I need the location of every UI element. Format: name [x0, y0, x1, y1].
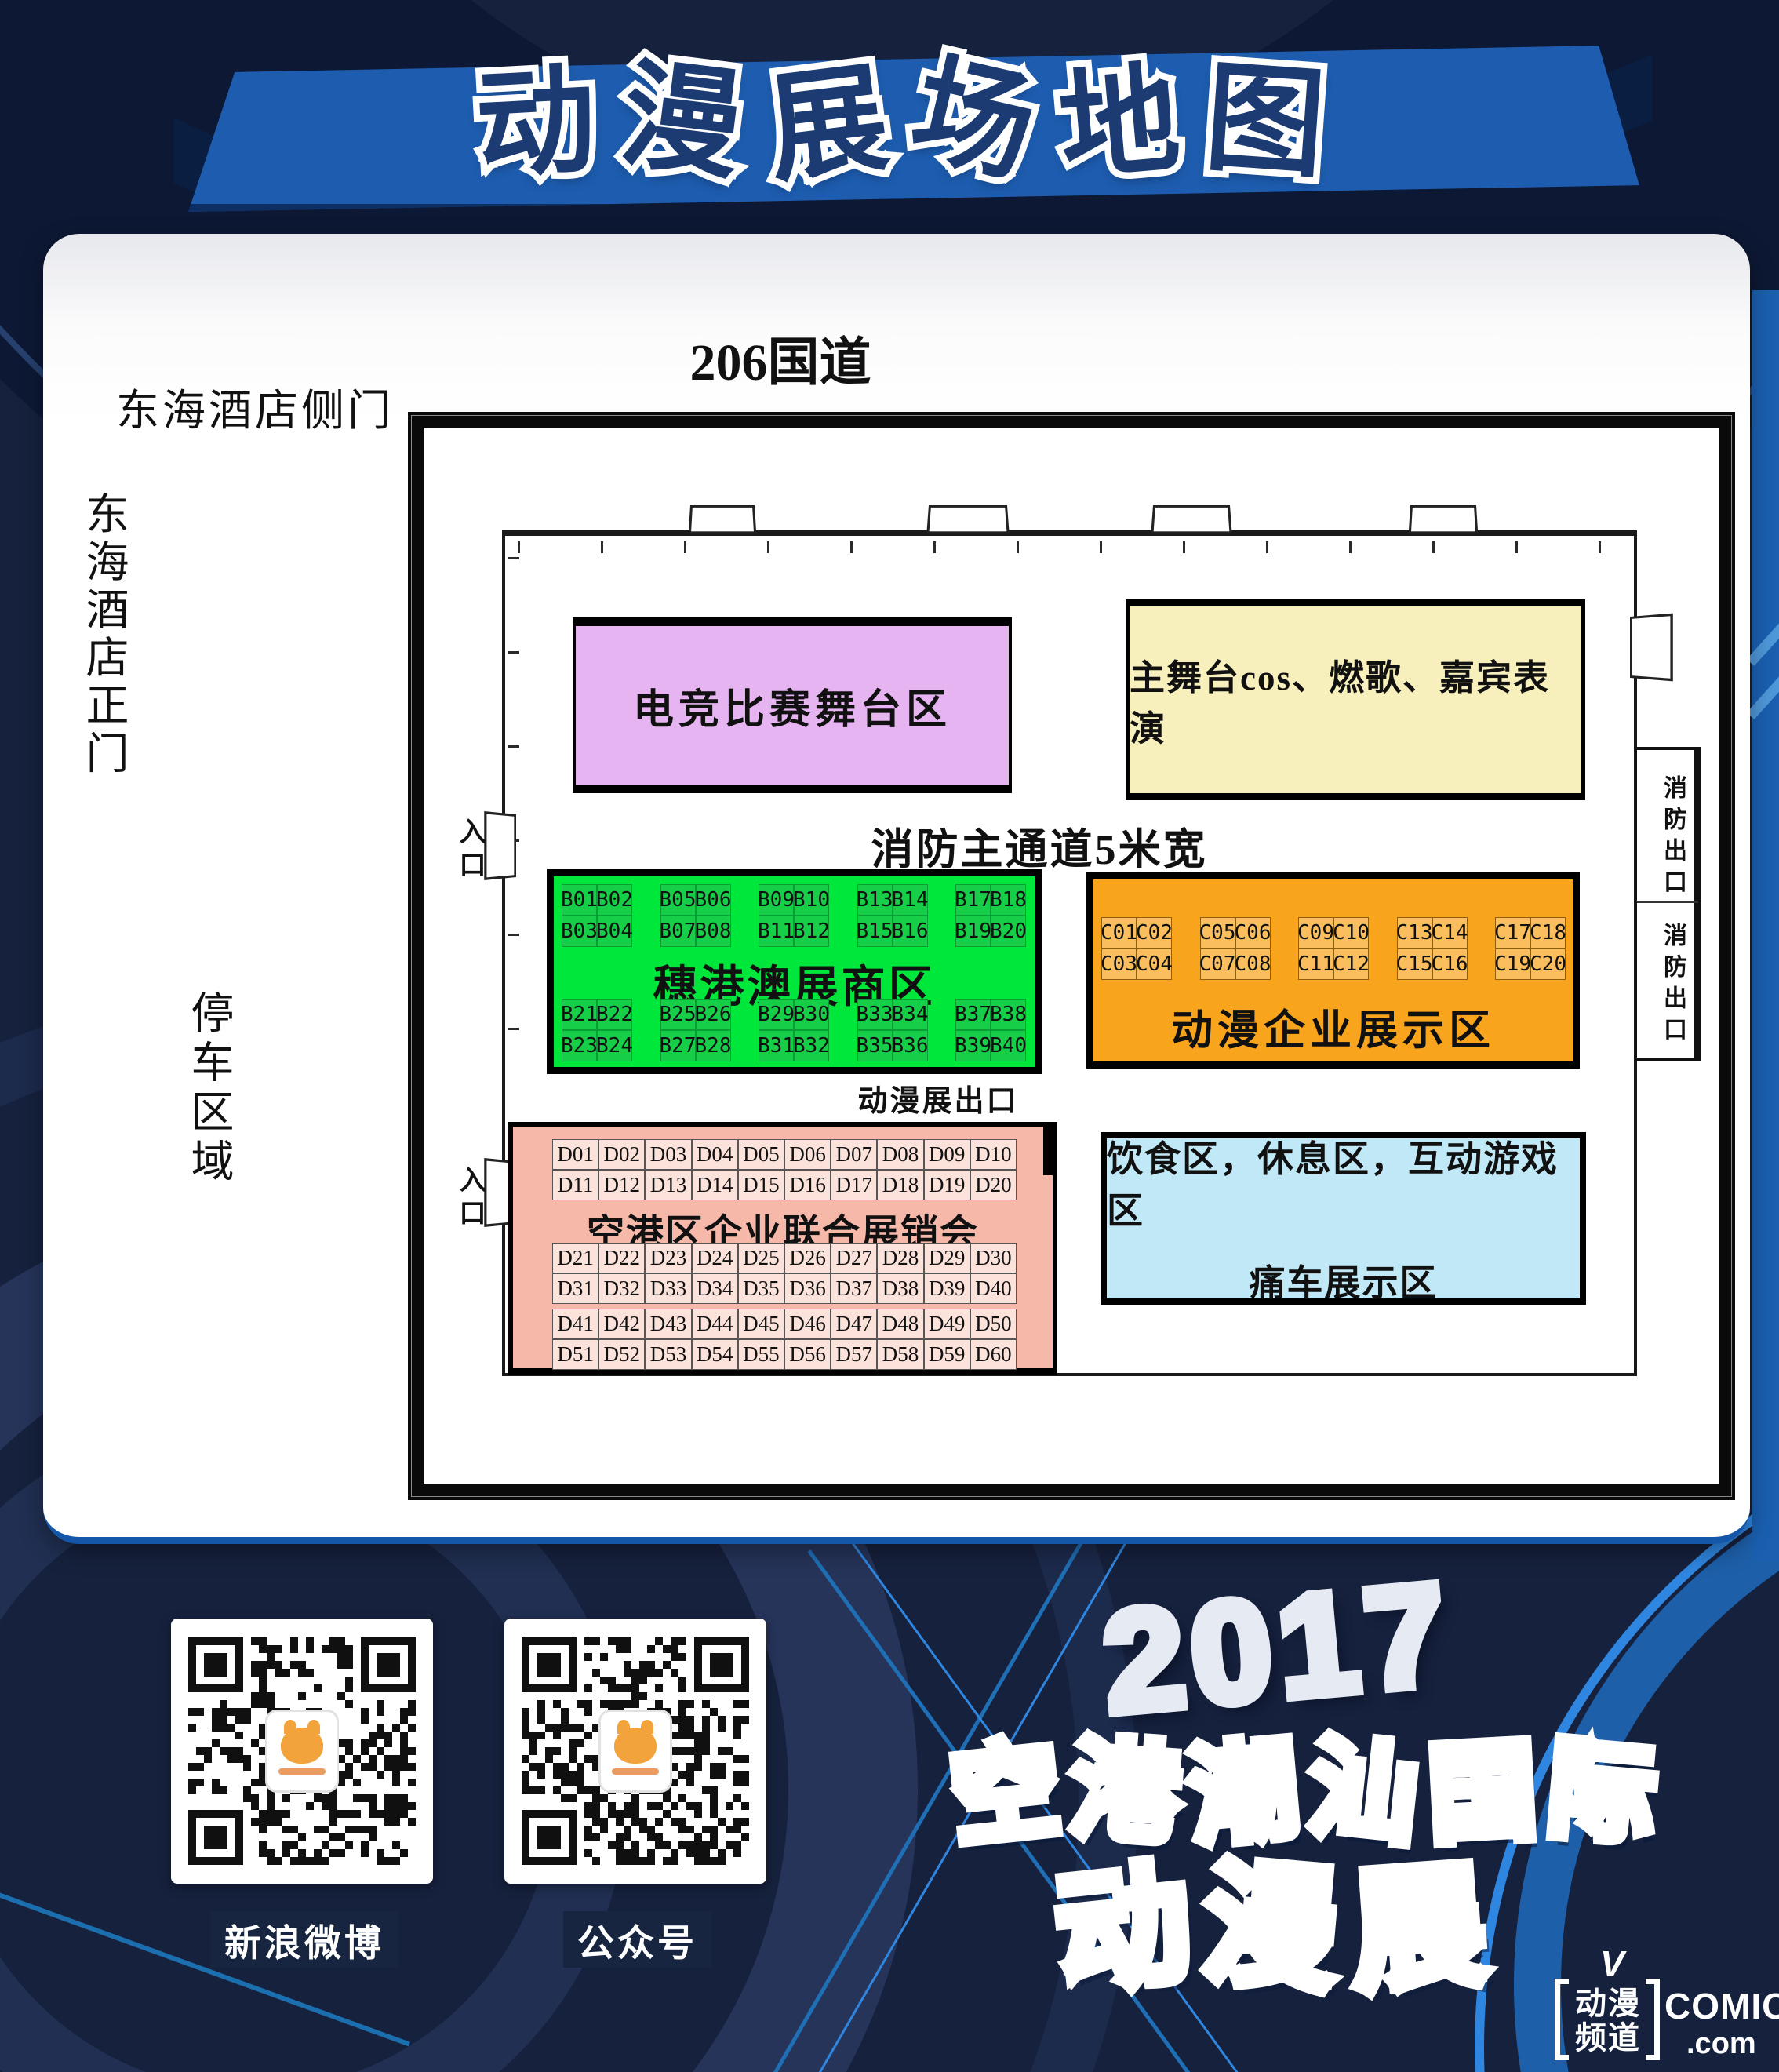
booth-cluster: B21B22B23B24: [562, 999, 632, 1061]
booth-cluster: B37B38B39B40: [955, 999, 1026, 1061]
booth-cell: C12: [1333, 949, 1369, 980]
booth-cell: C20: [1530, 949, 1566, 980]
booth-cell: D39: [924, 1273, 970, 1304]
booth-cluster: C17C18C19C20: [1495, 917, 1566, 980]
booth-cell: B37: [955, 999, 991, 1030]
vent-door-4: [1409, 505, 1479, 534]
booth-cluster: B33B34B35B36: [857, 999, 928, 1061]
booth-cell: D16: [784, 1170, 831, 1200]
booth-cell: B38: [991, 999, 1026, 1030]
booth-cell: B36: [893, 1030, 928, 1061]
booth-cell: B12: [794, 916, 829, 947]
booth-cell: B28: [696, 1030, 731, 1061]
page-title: 动漫展场地图 动漫展场地图: [267, 31, 1561, 220]
booth-cell: D36: [784, 1273, 831, 1304]
booth-cluster: C09C10C11C12: [1298, 917, 1369, 980]
booth-cell: C15: [1397, 949, 1432, 980]
booth-cell: C10: [1333, 917, 1369, 949]
booth-cell: B24: [597, 1030, 632, 1061]
booth-cell: D01: [552, 1139, 598, 1170]
booth-cell: B30: [794, 999, 829, 1030]
booth-cell: D56: [784, 1339, 831, 1370]
comicv-name-label: COMICV: [1664, 1985, 1779, 2027]
booth-cell: D42: [598, 1309, 645, 1339]
booth-cell: D15: [738, 1170, 784, 1200]
booth-cell: B33: [857, 999, 893, 1030]
booth-cell: B19: [955, 916, 991, 947]
booth-cell: D58: [877, 1339, 923, 1370]
zone-joint-fair-d: D01D02D03D04D05D06D07D08D09D10D11D12D13D…: [508, 1122, 1057, 1375]
vent-door-1: [689, 505, 757, 534]
building-columns-top: [518, 541, 1622, 553]
booth-cell: D20: [970, 1170, 1017, 1200]
booth-cell: C17: [1495, 917, 1530, 949]
poster-page: 动漫展场地图 动漫展场地图 206国道 东海酒店侧门 东海酒店正门 停车区域 入…: [0, 0, 1779, 2072]
booth-cell: D03: [645, 1139, 691, 1170]
zone-food-rest-line2: 痛车展示区: [1250, 1254, 1438, 1306]
zone-esports-stage: 电竞比赛舞台区: [573, 617, 1012, 793]
fire-exit-label-1: 消防出口: [1646, 775, 1690, 901]
booth-cell: D59: [924, 1339, 970, 1370]
booth-cell: D32: [598, 1273, 645, 1304]
booth-cell: D57: [831, 1339, 877, 1370]
booth-cell: B10: [794, 884, 829, 916]
d-band-1: D01D02D03D04D05D06D07D08D09D10D11D12D13D…: [552, 1139, 1017, 1200]
booth-cell: B08: [696, 916, 731, 947]
c-cluster-row: C01C02C03C04C05C06C07C08C09C10C11C12C13C…: [1101, 917, 1566, 980]
booth-cell: B34: [893, 999, 928, 1030]
hotel-side-door-label: 东海酒店侧门: [116, 375, 394, 438]
booth-cell: D21: [552, 1243, 598, 1273]
booth-cell: D55: [738, 1339, 784, 1370]
booth-cell: B32: [794, 1030, 829, 1061]
zone-food-rest-line1: 饮食区，休息区，互动游戏区: [1107, 1131, 1580, 1234]
booth-cluster: C05C06C07C08: [1200, 917, 1271, 980]
zone-main-stage: 主舞台cos、燃歌、嘉宾表演: [1126, 599, 1585, 800]
booth-cell: B17: [955, 884, 991, 916]
booth-cell: D17: [831, 1170, 877, 1200]
decoration-right-strip: [1752, 290, 1779, 1561]
booth-cluster: C01C02C03C04: [1101, 917, 1172, 980]
booth-cell: C02: [1137, 917, 1172, 949]
booth-cell: B16: [893, 916, 928, 947]
zone-food-rest: 饮食区，休息区，互动游戏区 痛车展示区: [1101, 1132, 1586, 1305]
booth-cell: B11: [759, 916, 794, 947]
d-band-2: D21D22D23D24D25D26D27D28D29D30D31D32D33D…: [552, 1243, 1017, 1304]
vent-door-2: [926, 505, 1010, 534]
booth-cell: C09: [1298, 917, 1333, 949]
booth-cell: D31: [552, 1273, 598, 1304]
booth-cell: B40: [991, 1030, 1026, 1061]
booth-cell: C16: [1432, 949, 1468, 980]
pink-zone-door-block: [1043, 1127, 1056, 1175]
b-cluster-row-1: B01B02B03B04B05B06B07B08B09B10B11B12B13B…: [562, 884, 1026, 947]
booth-cell: C05: [1200, 917, 1235, 949]
booth-cell: C06: [1235, 917, 1271, 949]
booth-cell: D09: [924, 1139, 970, 1170]
d-band-3: D41D42D43D44D45D46D47D48D49D50D51D52D53D…: [552, 1309, 1017, 1370]
booth-cell: D24: [692, 1243, 738, 1273]
fire-channel-label: 消防主通道5米宽: [843, 814, 1235, 876]
booth-cell: D18: [877, 1170, 923, 1200]
booth-cell: B07: [660, 916, 696, 947]
booth-cell: B03: [562, 916, 597, 947]
booth-cell: D30: [970, 1243, 1017, 1273]
entrance-label-1: 入口: [458, 818, 489, 883]
booth-cell: B22: [597, 999, 632, 1030]
booth-cell: C19: [1495, 949, 1530, 980]
zone-exhibitors-b: B01B02B03B04B05B06B07B08B09B10B11B12B13B…: [547, 869, 1042, 1074]
booth-cell: D48: [877, 1309, 923, 1339]
booth-cell: D45: [738, 1309, 784, 1339]
zone-esports-label: 电竞比赛舞台区: [633, 676, 951, 735]
booth-cell: D40: [970, 1273, 1017, 1304]
booth-cell: D11: [552, 1170, 598, 1200]
booth-cell: D13: [645, 1170, 691, 1200]
b-cluster-row-2: B21B22B23B24B25B26B27B28B29B30B31B32B33B…: [562, 999, 1026, 1061]
fire-exit-divider: [1637, 901, 1698, 903]
comicv-logo: V 动漫频道 COMICV .com: [1555, 1971, 1773, 2067]
qr-card-wechat: [504, 1619, 766, 1884]
comicv-bracket-right-icon: [1646, 1979, 1660, 2060]
booth-cell: C03: [1101, 949, 1137, 980]
booth-cell: D37: [831, 1273, 877, 1304]
booth-cell: D07: [831, 1139, 877, 1170]
zone-anime-companies-c: C01C02C03C04C05C06C07C08C09C10C11C12C13C…: [1086, 872, 1580, 1069]
booth-cell: D27: [831, 1243, 877, 1273]
booth-cell: B09: [759, 884, 794, 916]
booth-cell: D46: [784, 1309, 831, 1339]
booth-cell: D04: [692, 1139, 738, 1170]
booth-cell: C18: [1530, 917, 1566, 949]
booth-cell: D44: [692, 1309, 738, 1339]
booth-cell: B21: [562, 999, 597, 1030]
comicv-cn-label: 动漫频道: [1572, 1986, 1644, 2056]
booth-cell: B18: [991, 884, 1026, 916]
booth-cell: D54: [692, 1339, 738, 1370]
booth-cluster: B09B10B11B12: [759, 884, 829, 947]
booth-cell: D08: [877, 1139, 923, 1170]
booth-cell: B35: [857, 1030, 893, 1061]
booth-cell: B25: [660, 999, 696, 1030]
event-type: 动漫展 动漫展: [1043, 1850, 1514, 2007]
event-name-fill: 空港潮汕国际: [886, 1723, 1734, 1863]
booth-cell: D33: [645, 1273, 691, 1304]
booth-cell: B29: [759, 999, 794, 1030]
comicv-v-icon: V: [1600, 1943, 1624, 1985]
booth-cell: B20: [991, 916, 1026, 947]
booth-cell: B02: [597, 884, 632, 916]
comicv-tld-label: .com: [1686, 2027, 1756, 2061]
road-label: 206国道: [643, 320, 918, 395]
booth-cell: B06: [696, 884, 731, 916]
booth-cell: D51: [552, 1339, 598, 1370]
booth-cell: B15: [857, 916, 893, 947]
booth-cell: D23: [645, 1243, 691, 1273]
booth-cell: C07: [1200, 949, 1235, 980]
fire-exit-label-2: 消防出口: [1646, 923, 1690, 1048]
booth-cell: C11: [1298, 949, 1333, 980]
event-name: 空港潮汕国际 空港潮汕国际: [886, 1723, 1734, 1863]
booth-cell: B13: [857, 884, 893, 916]
booth-cell: C01: [1101, 917, 1137, 949]
side-door-right: [1630, 614, 1673, 682]
booth-cell: B14: [893, 884, 928, 916]
booth-cell: D12: [598, 1170, 645, 1200]
qr-label-wechat: 公众号: [563, 1911, 711, 1968]
booth-cell: C04: [1137, 949, 1172, 980]
booth-cell: B23: [562, 1030, 597, 1061]
booth-cell: C13: [1397, 917, 1432, 949]
booth-cell: D26: [784, 1243, 831, 1273]
zone-main-stage-label: 主舞台cos、燃歌、嘉宾表演: [1130, 649, 1581, 751]
booth-cluster: C13C14C15C16: [1397, 917, 1468, 980]
booth-cell: D53: [645, 1339, 691, 1370]
booth-cluster: B05B06B07B08: [660, 884, 731, 947]
event-type-fill: 动漫展: [1043, 1850, 1514, 2007]
booth-cluster: B29B30B31B32: [759, 999, 829, 1061]
booth-cell: D47: [831, 1309, 877, 1339]
booth-cell: D10: [970, 1139, 1017, 1170]
booth-cell: B31: [759, 1030, 794, 1061]
booth-cell: D43: [645, 1309, 691, 1339]
parking-area-label: 停车区域: [177, 990, 240, 1188]
mascot-logo: [267, 1712, 337, 1790]
booth-cell: B04: [597, 916, 632, 947]
entrance-label-2: 入口: [458, 1166, 489, 1232]
qr-label-weibo: 新浪微博: [210, 1911, 398, 1968]
hotel-main-gate-label: 东海酒店正门: [72, 491, 135, 778]
booth-cell: D52: [598, 1339, 645, 1370]
booth-cell: D06: [784, 1139, 831, 1170]
booth-cell: D25: [738, 1243, 784, 1273]
booth-cell: D19: [924, 1170, 970, 1200]
booth-cell: D22: [598, 1243, 645, 1273]
zone-anime-companies-c-label: 动漫企业展示区: [1093, 997, 1573, 1057]
booth-cell: C14: [1432, 917, 1468, 949]
booth-cell: B26: [696, 999, 731, 1030]
booth-cell: D50: [970, 1309, 1017, 1339]
booth-cell: D05: [738, 1139, 784, 1170]
vent-door-3: [1151, 505, 1231, 534]
booth-cell: B39: [955, 1030, 991, 1061]
booth-cell: D29: [924, 1243, 970, 1273]
booth-cell: B05: [660, 884, 696, 916]
booth-cell: D60: [970, 1339, 1017, 1370]
comicv-bracket-left-icon: [1555, 1979, 1569, 2060]
booth-cell: D02: [598, 1139, 645, 1170]
booth-cell: B27: [660, 1030, 696, 1061]
expo-exit-label: 动漫展出口: [824, 1076, 1053, 1120]
booth-cell: C08: [1235, 949, 1271, 980]
booth-cluster: B13B14B15B16: [857, 884, 928, 947]
booth-cell: D49: [924, 1309, 970, 1339]
booth-cell: D38: [877, 1273, 923, 1304]
qr-card-weibo: [171, 1619, 433, 1884]
booth-cluster: B25B26B27B28: [660, 999, 731, 1061]
page-title-fill: 动漫展场地图: [267, 31, 1561, 213]
mascot-logo: [601, 1712, 670, 1790]
booth-cell: D35: [738, 1273, 784, 1304]
booth-cell: D14: [692, 1170, 738, 1200]
booth-cell: D28: [877, 1243, 923, 1273]
booth-cluster: B01B02B03B04: [562, 884, 632, 947]
booth-cluster: B17B18B19B20: [955, 884, 1026, 947]
booth-cell: D41: [552, 1309, 598, 1339]
booth-cell: D34: [692, 1273, 738, 1304]
booth-cell: B01: [562, 884, 597, 916]
